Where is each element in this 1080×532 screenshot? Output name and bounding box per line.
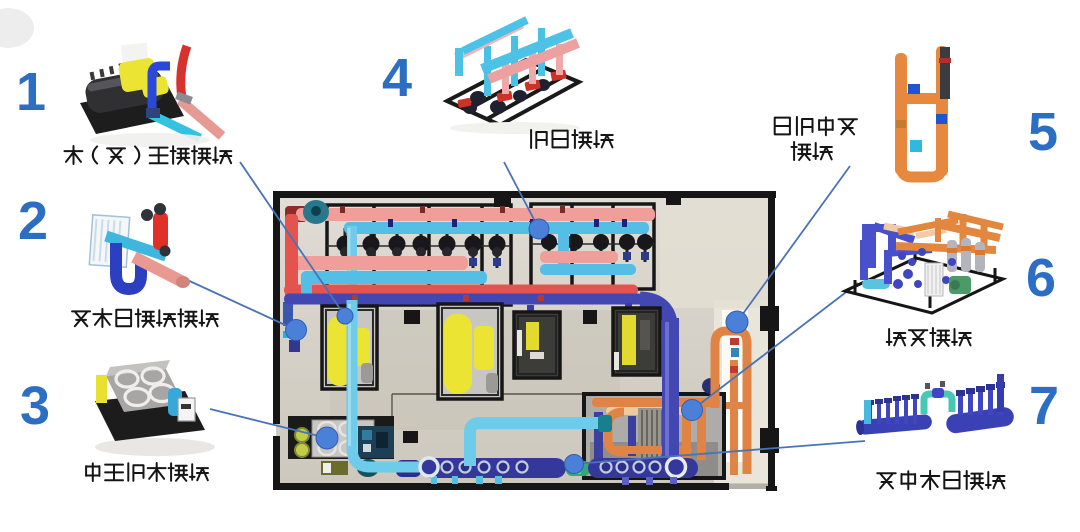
svg-text:6: 6 (1026, 248, 1056, 308)
svg-text:2: 2 (18, 191, 48, 251)
svg-text:7: 7 (1029, 376, 1059, 436)
svg-text:3: 3 (20, 376, 50, 436)
svg-text:1: 1 (16, 62, 46, 122)
svg-text:4: 4 (382, 48, 412, 108)
svg-text:5: 5 (1028, 102, 1058, 162)
